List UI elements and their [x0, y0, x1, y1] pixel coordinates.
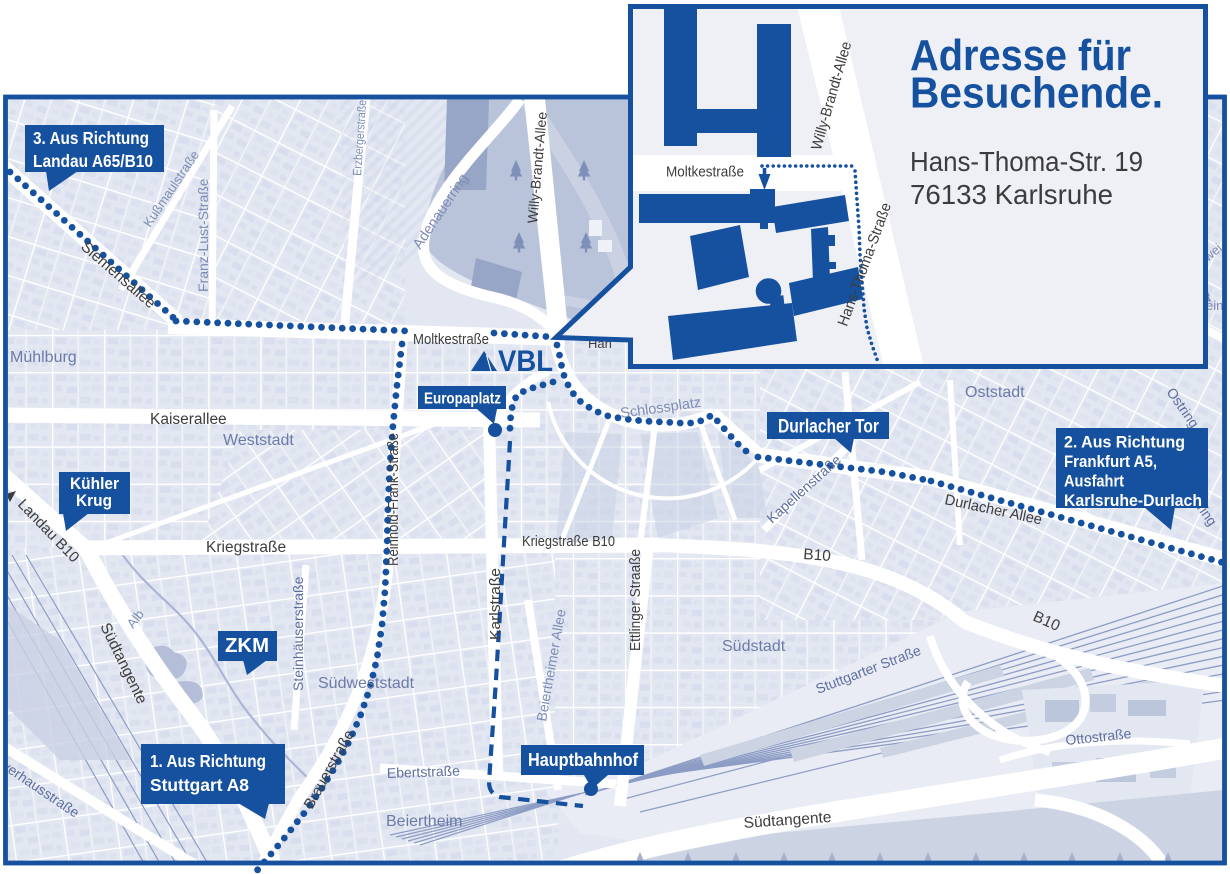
svg-text:Kaiserallee: Kaiserallee [150, 411, 227, 428]
svg-text:Karlstraße: Karlstraße [488, 568, 504, 640]
svg-text:Steinhäuserstraße: Steinhäuserstraße [290, 576, 306, 691]
svg-text:Mühlburg: Mühlburg [10, 349, 77, 366]
svg-text:Kriegstraße: Kriegstraße [206, 539, 286, 556]
svg-text:1. Aus Richtung: 1. Aus Richtung [150, 751, 266, 771]
svg-text:3. Aus Richtung: 3. Aus Richtung [33, 128, 149, 148]
svg-text:Moltkestraße: Moltkestraße [666, 165, 744, 181]
svg-text:VBL: VBL [498, 345, 553, 378]
svg-text:Ettlinger Straaße: Ettlinger Straaße [628, 549, 644, 651]
svg-text:Kriegstraße B10: Kriegstraße B10 [522, 533, 615, 550]
svg-text:ein: ein [1206, 298, 1223, 313]
svg-text:Südweststadt: Südweststadt [318, 675, 415, 692]
svg-text:Ausfahrt: Ausfahrt [1064, 472, 1124, 491]
svg-text:Oststadt: Oststadt [965, 384, 1025, 401]
svg-text:Besuchende.: Besuchende. [910, 69, 1163, 118]
svg-text:Frankfurt A5,: Frankfurt A5, [1064, 452, 1157, 471]
svg-text:Landau A65/B10: Landau A65/B10 [33, 151, 153, 171]
svg-text:Stuttgart A8: Stuttgart A8 [150, 775, 249, 795]
svg-text:Moltkestraße: Moltkestraße [413, 331, 489, 348]
svg-text:Franz-Lust-Straße: Franz-Lust-Straße [195, 178, 211, 292]
svg-text:Hauptbahnhof: Hauptbahnhof [528, 749, 639, 770]
svg-text:Karlsruhe-Durlach: Karlsruhe-Durlach [1064, 491, 1202, 510]
svg-text:Hans-Thoma-Str. 19: Hans-Thoma-Str. 19 [910, 146, 1143, 177]
svg-text:76133 Karlsruhe: 76133 Karlsruhe [910, 179, 1113, 210]
svg-text:Kühler: Kühler [70, 475, 120, 493]
svg-text:Durlacher Tor: Durlacher Tor [778, 417, 879, 438]
svg-text:Ebertstraße: Ebertstraße [387, 762, 461, 781]
svg-text:Reinhold-Frank-Straße: Reinhold-Frank-Straße [386, 433, 402, 566]
svg-text:Beiertheim: Beiertheim [386, 813, 462, 830]
svg-text:Krug: Krug [76, 492, 112, 510]
svg-text:ZKM: ZKM [225, 635, 269, 657]
svg-text:Südstadt: Südstadt [722, 638, 786, 655]
svg-text:Europaplatz: Europaplatz [424, 391, 501, 408]
svg-text:2. Aus Richtung: 2. Aus Richtung [1064, 433, 1185, 452]
svg-text:B10: B10 [803, 546, 832, 565]
svg-text:Weststadt: Weststadt [223, 432, 294, 449]
